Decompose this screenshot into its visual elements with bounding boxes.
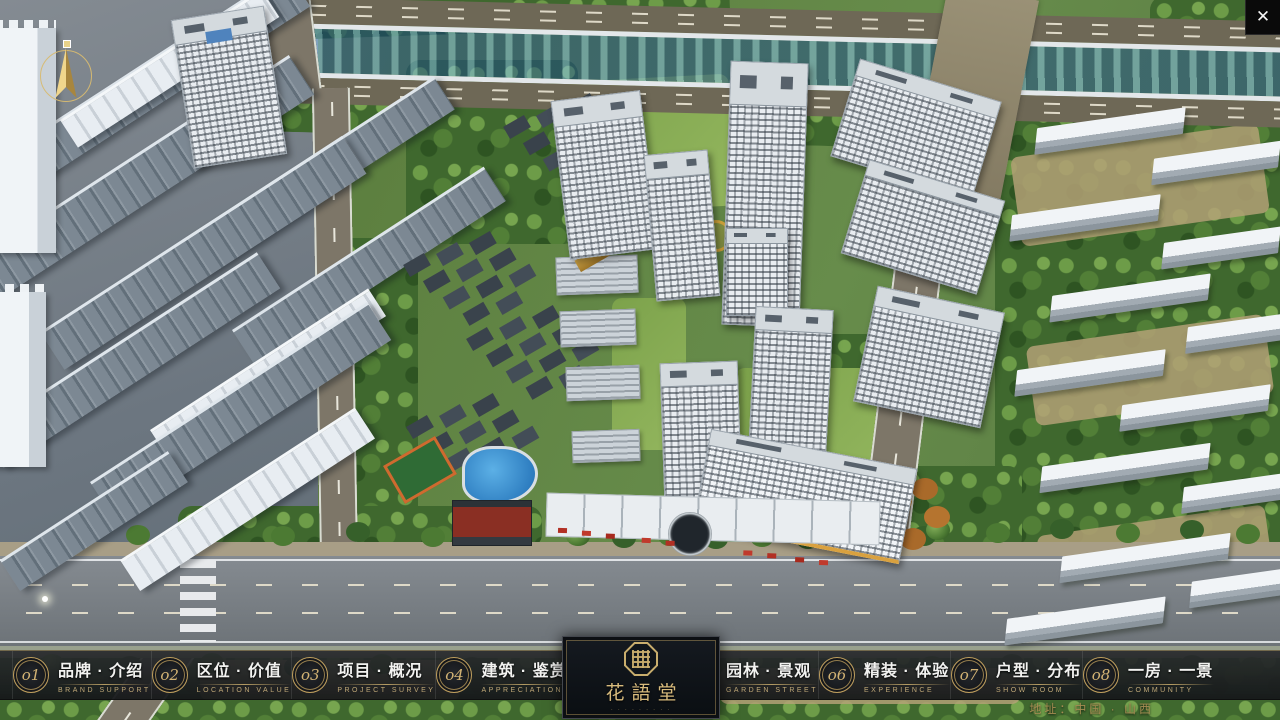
nav-label-block: 一房 · 一景 COMMUNITY: [1128, 657, 1214, 694]
street-trees: [926, 520, 950, 540]
street-lamp-glow: [42, 596, 48, 602]
nav-item-architecture[interactable]: o4 建筑 · 鉴赏 APPRECIATION: [435, 651, 567, 699]
nav-number-badge: o4: [436, 657, 472, 693]
entrance-plaza: [668, 512, 712, 556]
project-address: 地址：中国 · 山西: [1029, 700, 1154, 717]
nav-label-block: 精装 · 体验 EXPERIENCE: [864, 657, 950, 694]
highrise-tower: [748, 306, 833, 452]
close-icon: ✕: [1256, 7, 1270, 27]
swimming-pool: [462, 446, 538, 504]
midrise-building: [559, 309, 636, 348]
nav-number: o8: [1092, 666, 1111, 684]
nav-label: 一房 · 一景: [1128, 657, 1214, 681]
crosswalk: [180, 560, 216, 642]
gold-rule: [996, 684, 1082, 685]
gold-rule: [726, 684, 818, 685]
nav-number: o6: [828, 666, 847, 684]
gold-rule: [864, 684, 950, 685]
nav-label-block: 品牌 · 介绍 BRAND SUPPORT: [58, 657, 151, 694]
nav-group-left: o1 品牌 · 介绍 BRAND SUPPORT o2 区位 · 价值 LOCA…: [0, 651, 562, 699]
nav-label-block: 户型 · 分布 SHOW ROOM: [996, 657, 1082, 694]
nav-number-badge: o2: [152, 657, 188, 693]
nav-number: o2: [160, 666, 179, 684]
compass-icon[interactable]: [36, 40, 96, 104]
nav-item-interior-experience[interactable]: o6 精装 · 体验 EXPERIENCE: [818, 651, 950, 699]
nav-sublabel: PROJECT SURVEY: [337, 687, 435, 694]
highrise-tower: [726, 228, 788, 316]
nav-label: 户型 · 分布: [996, 657, 1082, 681]
nav-item-location-value[interactable]: o2 区位 · 价值 LOCATION VALUE: [151, 651, 292, 699]
nav-label-block: 区位 · 价值 LOCATION VALUE: [197, 657, 292, 694]
nav-label: 建筑 · 鉴赏: [481, 657, 567, 681]
nav-group-right: o5 园林 · 景观 GARDEN STREET o6 精装 · 体验 EXPE…: [680, 651, 1280, 699]
nav-number: o1: [22, 666, 41, 684]
nav-label-block: 园林 · 景观 GARDEN STREET: [726, 657, 818, 694]
brand-logo-panel[interactable]: 花語堂 · · · · · · · · ·: [562, 636, 720, 719]
nav-sublabel: SHOW ROOM: [996, 687, 1082, 694]
gold-rule: [481, 684, 567, 685]
nav-center-spacer: 花語堂 · · · · · · · · ·: [562, 651, 680, 699]
nav-label: 项目 · 概况: [337, 657, 435, 681]
nav-item-room-view[interactable]: o8 一房 · 一景 COMMUNITY: [1082, 651, 1214, 699]
nav-sublabel: EXPERIENCE: [864, 687, 950, 694]
gold-rule: [58, 684, 151, 685]
brand-tagline: · · · · · · · · ·: [611, 707, 671, 713]
nav-item-brand-intro[interactable]: o1 品牌 · 介绍 BRAND SUPPORT: [12, 651, 151, 699]
nav-number-badge: o8: [1083, 657, 1119, 693]
gold-rule: [337, 684, 435, 685]
nav-number: o3: [301, 666, 320, 684]
nav-number: o7: [960, 666, 979, 684]
midrise-building: [571, 429, 640, 463]
nav-item-floorplan-distribution[interactable]: o7 户型 · 分布 SHOW ROOM: [950, 651, 1082, 699]
nav-sublabel: APPRECIATION: [481, 687, 567, 694]
gold-rule: [1128, 684, 1214, 685]
nav-sublabel: GARDEN STREET: [726, 687, 818, 694]
nav-number-badge: o6: [819, 657, 855, 693]
bottom-nav-bar: o1 品牌 · 介绍 BRAND SUPPORT o2 区位 · 价值 LOCA…: [0, 650, 1280, 700]
nav-label: 园林 · 景观: [726, 657, 818, 681]
shop-canopy: [545, 493, 880, 546]
presentation-window: ✕ o1 品牌 · 介绍 BRAND SUPPORT o2 区位 · 价值 LO…: [0, 0, 1280, 720]
trees: [898, 466, 1022, 552]
midrise-building: [565, 365, 640, 402]
nav-sublabel: LOCATION VALUE: [197, 687, 292, 694]
nav-number-badge: o1: [13, 657, 49, 693]
highrise-tower: [551, 90, 660, 260]
highrise-tower: [644, 149, 721, 301]
nav-number-badge: o3: [292, 657, 328, 693]
chinese-gatehouse: [452, 500, 532, 546]
nav-label: 精装 · 体验: [864, 657, 950, 681]
nav-number: o4: [445, 666, 464, 684]
nav-label: 品牌 · 介绍: [58, 657, 151, 681]
nav-number-badge: o7: [951, 657, 987, 693]
seal-script: [626, 644, 656, 674]
brand-title: 花語堂: [598, 678, 683, 705]
nav-sublabel: COMMUNITY: [1128, 687, 1214, 694]
nav-label-block: 建筑 · 鉴赏 APPRECIATION: [481, 657, 567, 694]
nav-label: 区位 · 价值: [197, 657, 292, 681]
tower-building-west: [0, 292, 46, 467]
villa-cluster: [466, 327, 494, 351]
nav-item-project-overview[interactable]: o3 项目 · 概况 PROJECT SURVEY: [291, 651, 435, 699]
nav-label-block: 项目 · 概况 PROJECT SURVEY: [337, 657, 435, 694]
nav-sublabel: BRAND SUPPORT: [58, 687, 151, 694]
gold-rule: [197, 684, 292, 685]
map-view[interactable]: [0, 0, 1280, 720]
close-button[interactable]: ✕: [1245, 0, 1280, 35]
brand-seal-icon: [624, 642, 658, 676]
parked-cars: [558, 528, 567, 533]
compass-north-bead: [63, 40, 71, 48]
